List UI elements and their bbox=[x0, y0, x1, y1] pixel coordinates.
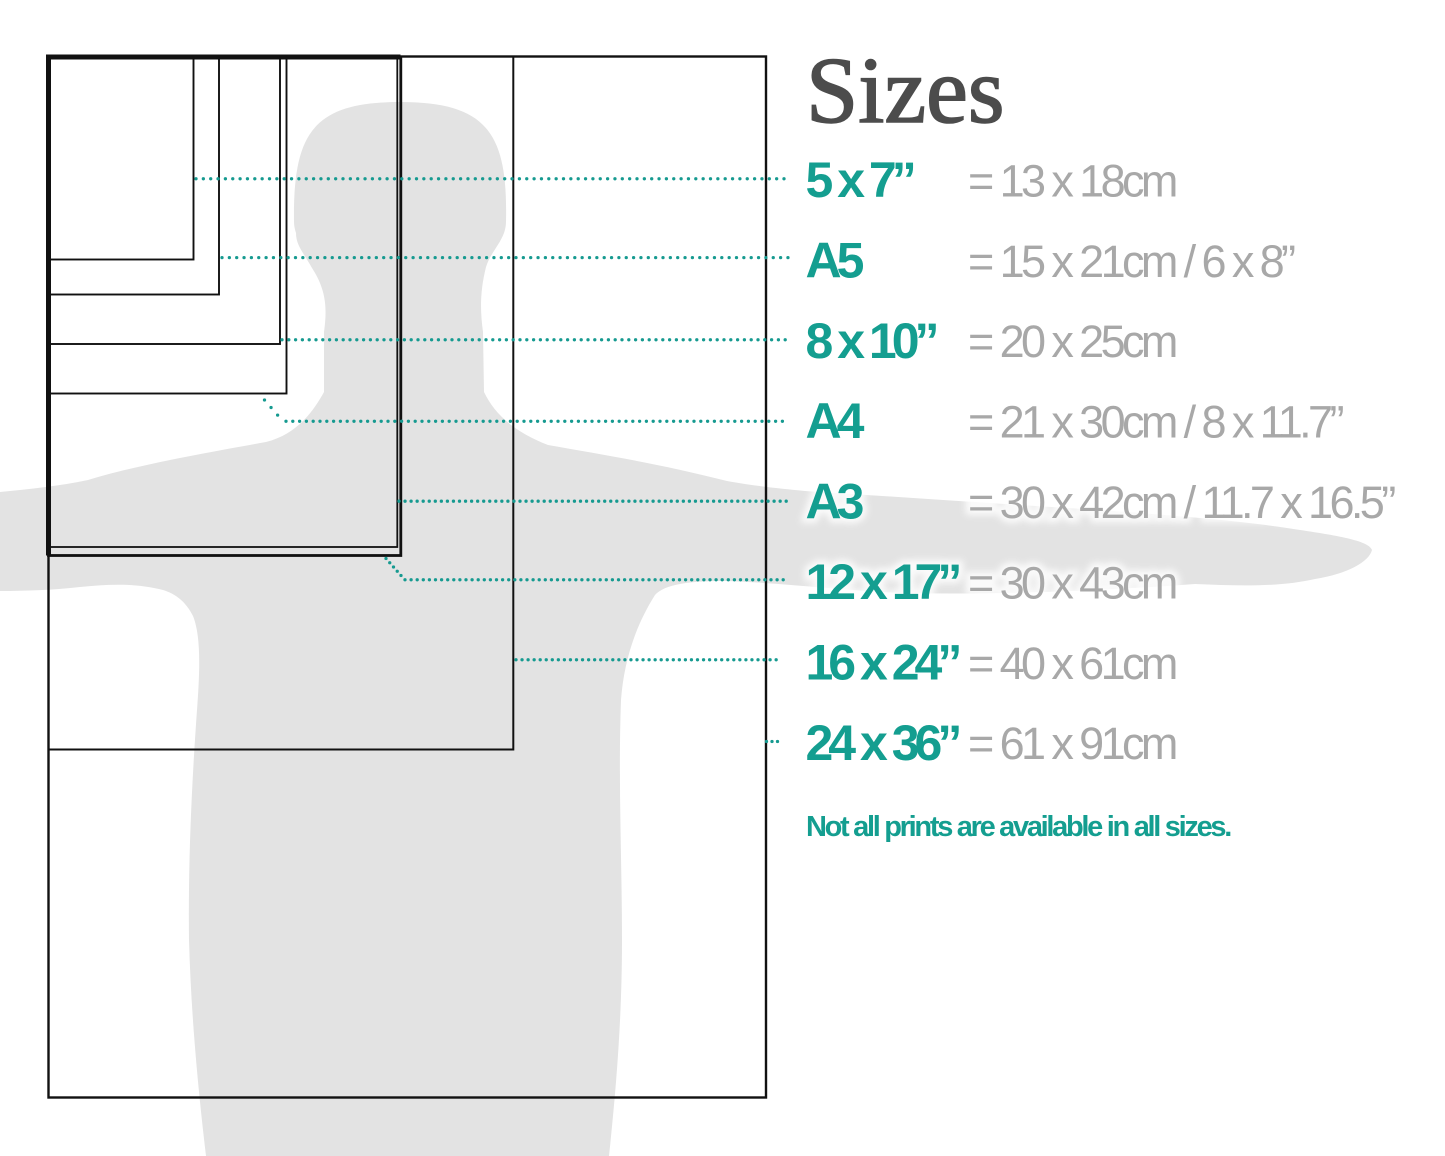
svg-text:Sizes: Sizes bbox=[806, 39, 1004, 143]
svg-text:= 20 x 25cm: = 20 x 25cm bbox=[968, 316, 1176, 367]
svg-text:24 x 36”: 24 x 36” bbox=[806, 715, 960, 771]
svg-text:= 61 x 91cm: = 61 x 91cm bbox=[968, 718, 1176, 769]
svg-text:= 30 x 43cm: = 30 x 43cm bbox=[968, 557, 1176, 608]
svg-text:= 13 x 18cm: = 13 x 18cm bbox=[968, 155, 1176, 206]
svg-text:A5: A5 bbox=[806, 232, 864, 288]
svg-text:8 x 10”: 8 x 10” bbox=[806, 313, 937, 369]
svg-text:16 x 24”: 16 x 24” bbox=[806, 634, 960, 690]
svg-text:5 x 7”: 5 x 7” bbox=[806, 152, 914, 208]
svg-text:= 30 x 42cm / 11.7 x 16.5”: = 30 x 42cm / 11.7 x 16.5” bbox=[968, 477, 1395, 528]
svg-text:A3: A3 bbox=[806, 474, 863, 530]
svg-text:A4: A4 bbox=[806, 393, 865, 449]
svg-text:= 40 x 61cm: = 40 x 61cm bbox=[968, 638, 1176, 689]
svg-text:12 x 17”: 12 x 17” bbox=[806, 554, 960, 610]
svg-text:Not all prints are available i: Not all prints are available in all size… bbox=[806, 811, 1231, 843]
svg-text:= 21 x 30cm / 8 x 11.7”: = 21 x 30cm / 8 x 11.7” bbox=[968, 397, 1343, 448]
svg-text:= 15 x 21cm / 6 x 8”: = 15 x 21cm / 6 x 8” bbox=[968, 236, 1295, 287]
